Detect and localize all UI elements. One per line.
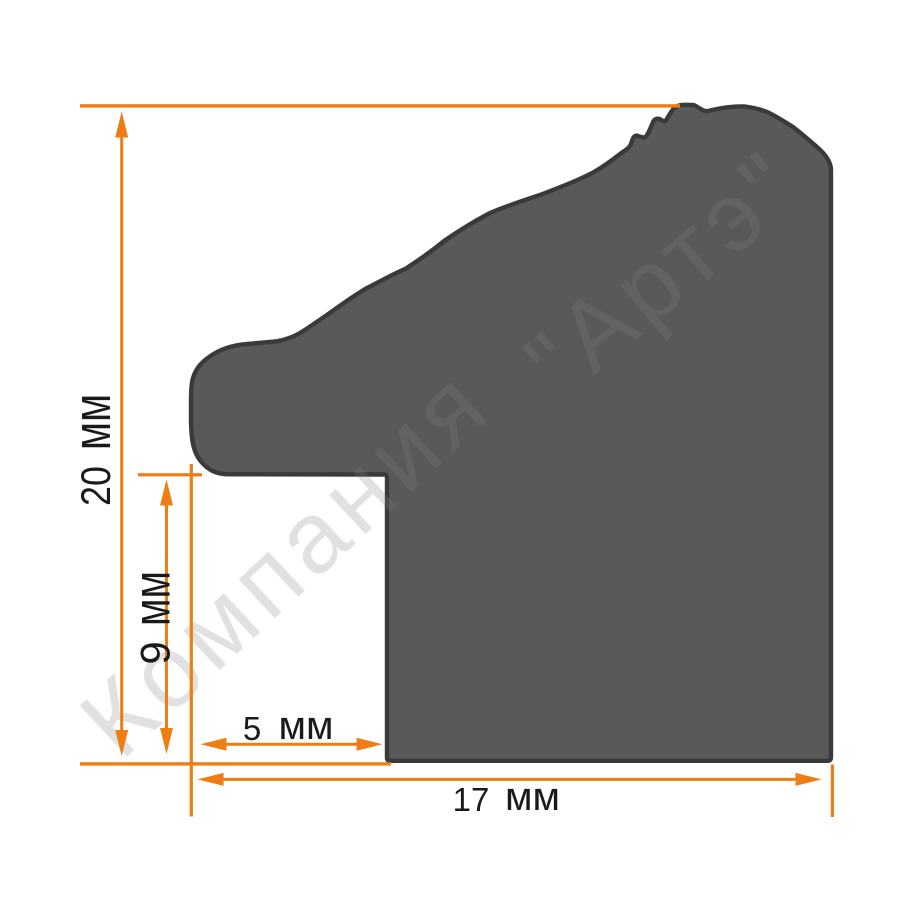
- svg-text:мм: мм: [279, 704, 334, 748]
- svg-text:20: 20: [73, 466, 119, 506]
- svg-text:мм: мм: [63, 394, 122, 450]
- svg-text:мм: мм: [505, 775, 560, 819]
- svg-text:мм: мм: [122, 571, 180, 626]
- svg-text:17: 17: [453, 781, 490, 818]
- svg-text:5: 5: [243, 710, 261, 747]
- svg-text:9: 9: [132, 641, 179, 664]
